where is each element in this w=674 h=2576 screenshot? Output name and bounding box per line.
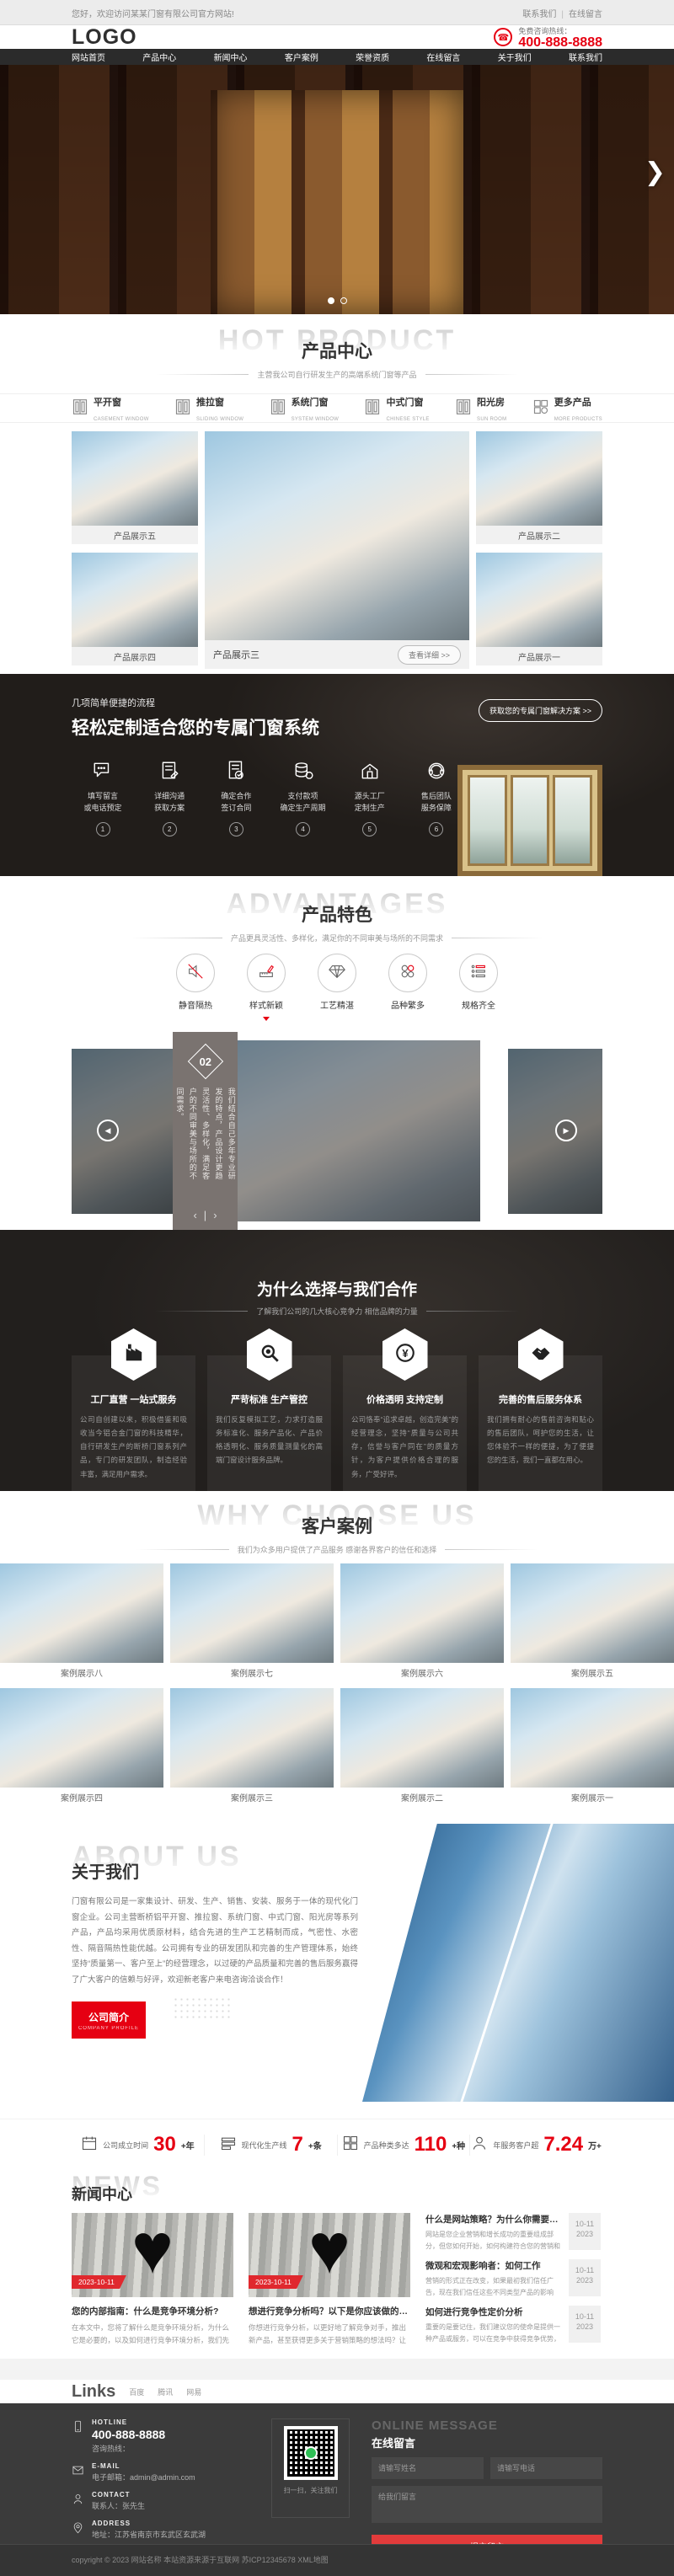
product-title: 产品展示五 [72, 526, 198, 544]
news-item-title: 如何进行竞争性定价分析 [425, 2306, 562, 2318]
case-image [170, 1563, 334, 1663]
product-image [476, 431, 602, 526]
tab-sublabel: SLIDING WINDOW [196, 417, 243, 422]
step-number: 4 [296, 822, 310, 836]
stat-label: 公司成立时间 [103, 2140, 148, 2151]
stat-customers: 年服务客户超 7.24 万+ [470, 2135, 602, 2156]
divider [155, 1311, 248, 1312]
copyright-text: copyright © 2023 网站名称 本站资源来源于互联网 苏ICP123… [72, 2556, 329, 2564]
news-list-item[interactable]: 什么是网站策略？为什么你需要它... 网站是您企业营销和增长成功的重要组成部分，… [425, 2213, 601, 2252]
stat-years: 公司成立时间 30 +年 [72, 2135, 205, 2156]
tab-label: 更多产品 [554, 398, 591, 408]
hotline-number: 400-888-8888 [518, 36, 602, 50]
tab-sliding-window[interactable]: 推拉窗SLIDING WINDOW [174, 394, 243, 425]
case-card[interactable]: 案例展示五 [511, 1563, 674, 1681]
name-input[interactable] [372, 2457, 484, 2479]
dot-pattern-decoration [173, 1996, 232, 2018]
stat-unit: +条 [308, 2139, 322, 2151]
divider: | [561, 10, 564, 19]
window-icon [72, 398, 88, 420]
feature-label: 工艺精湛 [318, 998, 356, 1011]
online-message-form: ONLINE MESSAGE 在线留言 提交留言 [372, 2418, 602, 2544]
why-subtitle: 了解我们公司的几大核心竞争力 相信品牌的力量 [256, 1306, 418, 1317]
news-featured-card[interactable]: 2023-10-11 想进行竞争分析吗？以下是你应该做的7个理... 你想进行竞… [249, 2213, 410, 2348]
active-feature-marker [263, 1017, 270, 1021]
stat-label: 现代化生产线 [242, 2140, 287, 2151]
process-step: 支付款项确定生产周期 4 [272, 760, 334, 836]
news-title: 新闻中心 [72, 2183, 602, 2205]
why-card-factory: 工厂直营 一站式服务 公司自创建以来，积极借鉴和吸收当今铝合金门窗的科技精华，自… [72, 1355, 195, 1491]
tab-sublabel: CHINESE STYLE [386, 417, 429, 422]
about-section: ABOUT US 关于我们 门窗有限公司是一家集设计、研发、生产、销售、安装、服… [0, 1824, 674, 2119]
stat-value: 30 [153, 2135, 176, 2155]
logo[interactable]: LOGO [72, 25, 137, 50]
feature-label: 规格齐全 [459, 998, 498, 1011]
coins-icon [292, 771, 314, 785]
friend-links-bar: Links 百度 腾讯 网易 [0, 2380, 674, 2403]
why-card-title: 价格透明 支持定制 [351, 1392, 458, 1406]
get-solution-button[interactable]: 获取您的专属门窗解决方案 >> [479, 699, 602, 722]
list-icon [469, 962, 488, 985]
why-card-title: 完善的售后服务体系 [487, 1392, 594, 1406]
nav-item-honor[interactable]: 荣誉资质 [356, 51, 389, 63]
tab-label: 阳光房 [477, 398, 505, 408]
factory-icon [123, 1342, 145, 1368]
featured-product-card[interactable]: 产品展示三 查看详细 >> [205, 431, 469, 669]
why-card-price: ¥ 价格透明 支持定制 公司恪奉“追求卓越，创造完美”的经营理念，坚持“质量与公… [343, 1355, 467, 1491]
banner-dots [0, 297, 674, 304]
topbar-link-contact[interactable]: 联系我们 [522, 10, 556, 19]
feature-label: 品种繁多 [388, 998, 427, 1011]
friend-link[interactable]: 网易 [186, 2386, 201, 2397]
news-list-item[interactable]: 如何进行竞争性定价分析 重要的是要记住，我们建议您的使命是提供一种产品或服务，可… [425, 2306, 601, 2344]
news-card-excerpt: 你想进行竞争分析，以更好地了解竞争对手，推出新产品，甚至获得更多关于营销策略的想… [249, 2322, 410, 2348]
news-image: 2023-10-11 [72, 2213, 233, 2297]
view-detail-button[interactable]: 查看详细 >> [398, 645, 461, 665]
news-image: 2023-10-11 [249, 2213, 410, 2297]
carousel-arrow-right[interactable]: ▶ [555, 1120, 577, 1141]
case-card[interactable]: 案例展示七 [170, 1563, 334, 1681]
why-card-standard: 严苛标准 生产管控 我们反复模拟工艺，力求打造服务标准化、服务产品化、产品价格透… [207, 1355, 331, 1491]
stat-unit: 万+ [588, 2139, 602, 2151]
case-card[interactable]: 案例展示八 [0, 1563, 163, 1681]
footer-contact-column: HOTLINE400-888-8888咨询热线： E-MAIL电子邮箱：admi… [72, 2418, 249, 2544]
product-card[interactable]: 产品展示一 [476, 553, 602, 665]
case-image [0, 1688, 163, 1788]
diamond-icon [328, 962, 346, 985]
qr-code [284, 2426, 338, 2480]
divider [425, 374, 518, 375]
news-card-excerpt: 在本文中，您将了解什么是竞争环境分析，为什么它是必要的，以及如何进行竞争环境分析… [72, 2322, 233, 2348]
design-icon [257, 962, 275, 985]
nav-item-home[interactable]: 网站首页 [72, 51, 105, 63]
process-side-image [457, 765, 602, 876]
cases-section: WHY CHOOSE US 客户案例 我们为众多用户提供了产品服务 感谢各界客户… [0, 1491, 674, 1824]
stat-products: 产品种类多达 110 +种 [338, 2135, 471, 2156]
hotline: ☎ 免费咨询热线： 400-888-8888 [494, 25, 602, 50]
carousel-prev-button[interactable]: ‹ [193, 1209, 196, 1221]
nav-item-cases[interactable]: 客户案例 [285, 51, 318, 63]
slide-number: 02 [199, 1056, 211, 1068]
tab-sublabel: MORE PRODUCTS [554, 417, 602, 422]
step-number: 5 [362, 822, 377, 836]
carousel-overlay-panel: 02 我们结合自己多年专业研发的特点，产品设计更趋灵活性、多样化，满足客户的不同… [173, 1032, 238, 1230]
tab-label: 中式门窗 [386, 398, 423, 408]
message-ghost-title: ONLINE MESSAGE [372, 2418, 602, 2433]
advantages-section: ADVANTAGES 产品特色 产品更具灵活性、多样化，满足你的不同审美与场所的… [0, 876, 674, 1032]
news-item-date: 10-112023 [569, 2306, 601, 2343]
tab-label: 推拉窗 [196, 398, 224, 408]
nav-item-news[interactable]: 新闻中心 [214, 51, 248, 63]
users-icon [471, 2135, 488, 2156]
carousel-next-button[interactable]: › [213, 1209, 217, 1221]
phone-input[interactable] [490, 2457, 602, 2479]
why-card-aftersale: 完善的售后服务体系 我们拥有耐心的售前咨询和贴心的售后团队，呵护您的生活，让您体… [479, 1355, 602, 1491]
copyright-bar: copyright © 2023 网站名称 本站资源来源于互联网 苏ICP123… [0, 2544, 674, 2576]
case-image [511, 1688, 674, 1788]
tab-sublabel: CASEMENT WINDOW [94, 417, 149, 422]
news-date-ribbon: 2023-10-11 [72, 2275, 126, 2289]
friend-link[interactable]: 腾讯 [158, 2386, 173, 2397]
process-steps: 填写留言或电话预定 1 详细沟通获取方案 2 确定合作签订合同 3 支付款项确定… [72, 760, 468, 836]
more-products-icon [532, 398, 549, 420]
case-title: 案例展示七 [170, 1663, 334, 1681]
price-icon: ¥ [394, 1342, 416, 1368]
factory-icon [359, 771, 381, 785]
case-image [170, 1688, 334, 1788]
news-card-title: 您的内部指南：什么是竞争环境分析? [72, 2305, 233, 2317]
stat-label: 年服务客户超 [493, 2140, 538, 2151]
footer-qrcode-box: 扫一扫，关注我们 [271, 2418, 350, 2518]
about-building-image [362, 1824, 674, 2102]
why-card-title: 工厂直营 一站式服务 [80, 1392, 187, 1406]
tab-sun-room[interactable]: 阳光房SUN ROOM [455, 394, 506, 425]
nav-item-contact[interactable]: 联系我们 [569, 51, 602, 63]
advantages-title: 产品特色 [0, 901, 674, 927]
product-title: 产品展示四 [72, 647, 198, 665]
svg-text:¥: ¥ [402, 1346, 409, 1359]
news-item-date: 10-112023 [569, 2259, 601, 2296]
main-nav: 网站首页 产品中心 新闻中心 客户案例 荣誉资质 在线留言 关于我们 联系我们 [0, 49, 674, 65]
news-item-title: 什么是网站策略？为什么你需要它... [425, 2213, 562, 2226]
why-card-title: 严苛标准 生产管控 [216, 1392, 323, 1406]
why-title: 为什么选择与我们合作 [0, 1277, 674, 1300]
mute-icon [186, 962, 205, 985]
products-section-head: HOT PRODUCT 产品中心 主营我公司自行研发生产的高端系统门窗等产品 [0, 314, 674, 393]
case-image [340, 1563, 504, 1663]
window-icon [174, 398, 191, 420]
slide-caption: 我们结合自己多年专业研发的特点，产品设计更趋灵活性、多样化，满足客户的不同审美与… [173, 1088, 237, 1187]
why-card-desc: 公司恪奉“追求卓越，创造完美”的经营理念，坚持“质量与公司共存，信誉与客户同在”… [351, 1413, 458, 1481]
links-title: Links [72, 2382, 115, 2402]
banner-image [211, 90, 463, 314]
divider: | [204, 1209, 206, 1221]
case-card[interactable]: 案例展示六 [340, 1563, 504, 1681]
page: 您好，欢迎访问某某门窗有限公司官方网站! 联系我们|在线留言 LOGO ☎ 免费… [0, 0, 674, 2576]
slide-number-diamond: 02 [187, 1044, 222, 1079]
case-card[interactable]: 案例展示一 [511, 1688, 674, 1806]
product-image [476, 553, 602, 647]
cases-subtitle: 我们为众多用户提供了产品服务 感谢各界客户的信任和选择 [238, 1544, 437, 1555]
divider [136, 1549, 229, 1550]
variety-icon [399, 962, 417, 985]
tab-sublabel: SUN ROOM [477, 417, 506, 422]
why-section: 为什么选择与我们合作 了解我们公司的几大核心竞争力 相信品牌的力量 工厂直营 一… [0, 1230, 674, 1491]
case-title: 案例展示二 [340, 1788, 504, 1806]
product-title: 产品展示一 [476, 647, 602, 665]
welcome-text: 您好，欢迎访问某某门窗有限公司官方网站! [72, 7, 234, 19]
feature-label: 样式新颖 [247, 998, 286, 1011]
phone-icon [72, 2418, 84, 2437]
tab-label: 系统门窗 [292, 398, 329, 408]
window-icon [364, 398, 381, 420]
product-card[interactable]: 产品展示四 [72, 553, 198, 665]
service-icon [425, 771, 447, 785]
stat-unit: +种 [452, 2139, 465, 2151]
chat-icon [92, 771, 114, 785]
news-item-title: 微观和宏观影响者：如何工作 [425, 2259, 562, 2272]
news-item-excerpt: 重要的是要记住，我们建议您的使命是提供一种产品或服务，可以在竞争中获得竞争优势，… [425, 2322, 562, 2344]
tab-chinese-style[interactable]: 中式门窗CHINESE STYLE [364, 394, 429, 425]
footer-address: ADDRESS地址：江苏省南京市玄武区玄武湖 [72, 2520, 249, 2540]
process-step: 确定合作签订合同 3 [205, 760, 267, 836]
feature-specs[interactable]: 规格齐全 [459, 954, 498, 1011]
tab-label: 平开窗 [94, 398, 121, 408]
stat-value: 7.24 [543, 2135, 583, 2155]
footer-hotline: HOTLINE400-888-8888咨询热线： [72, 2418, 249, 2454]
banner-dot-1[interactable] [328, 297, 334, 304]
section-divider-band [0, 2359, 674, 2380]
hero-banner: ❯ [0, 65, 674, 314]
divider [445, 1549, 538, 1550]
news-card-title: 想进行竞争分析吗？以下是你应该做的7个理... [249, 2305, 410, 2317]
tab-more-products[interactable]: 更多产品MORE PRODUCTS [532, 394, 602, 425]
header: LOGO ☎ 免费咨询热线： 400-888-8888 [0, 25, 674, 49]
stats-strip: 公司成立时间 30 +年 现代化生产线 7 +条 产品种类多达 110 +种 年… [0, 2119, 674, 2169]
stat-value: 110 [415, 2135, 447, 2155]
products-title: 产品中心 [0, 338, 674, 363]
nav-item-about[interactable]: 关于我们 [498, 51, 532, 63]
news-item-excerpt: 网站是您企业营销和增长成功的重要组成部分，但您如何开始，如何构建符合您的营销和业… [425, 2229, 562, 2252]
calendar-icon [81, 2135, 98, 2156]
advantages-subtitle: 产品更具灵活性、多样化，满足你的不同审美与场所的不同需求 [231, 933, 443, 943]
map-pin-icon [72, 2520, 84, 2538]
wechat-logo-dot [304, 2446, 318, 2460]
person-icon [72, 2491, 84, 2509]
product-title: 产品展示三 [213, 648, 259, 661]
banner-dot-2[interactable] [340, 297, 347, 304]
case-title: 案例展示八 [0, 1663, 163, 1681]
case-title: 案例展示六 [340, 1663, 504, 1681]
process-section: 几项简单便捷的流程 轻松定制适合您的专属门窗系统 获取您的专属门窗解决方案 >>… [0, 674, 674, 876]
feature-variety[interactable]: 品种繁多 [388, 954, 427, 1011]
products-subtitle: 主营我公司自行研发生产的高端系统门窗等产品 [257, 369, 416, 380]
step-number: 1 [96, 822, 110, 836]
step-number: 6 [429, 822, 443, 836]
stat-label: 产品种类多达 [364, 2140, 409, 2151]
case-title: 案例展示五 [511, 1663, 674, 1681]
case-title: 案例展示三 [170, 1788, 334, 1806]
case-card[interactable]: 案例展示二 [340, 1688, 504, 1806]
why-card-desc: 公司自创建以来，积极借鉴和吸收当今铝合金门窗的科技精华，自行研发生产的断桥门窗系… [80, 1413, 187, 1481]
step-number: 2 [163, 822, 177, 836]
stat-lines: 现代化生产线 7 +条 [205, 2135, 338, 2156]
carousel-arrow-left[interactable]: ◀ [97, 1120, 119, 1141]
grid-icon [342, 2135, 359, 2156]
feature-list: 静音隔热 样式新颖 工艺精湛 品种繁多 规格齐全 [0, 954, 674, 1011]
divider [452, 938, 544, 938]
divider [130, 938, 222, 938]
handshake-icon [530, 1342, 552, 1368]
case-card[interactable]: 案例展示三 [170, 1688, 334, 1806]
magnifier-icon [259, 1342, 281, 1368]
news-item-date: 10-112023 [569, 2213, 601, 2250]
divider [426, 1311, 519, 1312]
contract-icon [225, 771, 247, 785]
message-textarea[interactable] [372, 2486, 602, 2523]
qr-caption: 扫一扫，关注我们 [279, 2486, 342, 2495]
stat-unit: +年 [181, 2139, 195, 2151]
tab-system-window[interactable]: 系统门窗SYSTEM WINDOW [270, 394, 340, 425]
news-list: 什么是网站策略？为什么你需要它... 网站是您企业营销和增长成功的重要组成部分，… [425, 2213, 601, 2348]
product-card[interactable]: 产品展示五 [72, 431, 198, 544]
news-date-ribbon: 2023-10-11 [249, 2275, 303, 2289]
why-card-desc: 我们拥有耐心的售前咨询和贴心的售后团队，呵护您的生活，让您体验不一样的便捷，为了… [487, 1413, 594, 1467]
news-item-excerpt: 营销的形式正在改变，如果最初我们信任广告，现在我们信任这些不同类型产品的影响者，… [425, 2275, 562, 2298]
divider [156, 374, 249, 375]
feature-style[interactable]: 样式新颖 [247, 954, 286, 1011]
topbar-link-message[interactable]: 在线留言 [569, 10, 602, 19]
company-profile-button[interactable]: 公司简介 COMPANY PROFILE [72, 2001, 146, 2039]
carousel-main-slide [202, 1040, 480, 1221]
window-icon [270, 398, 286, 420]
phone-icon: ☎ [494, 28, 512, 46]
mail-icon [72, 2462, 84, 2481]
stat-value: 7 [292, 2135, 303, 2155]
tab-casement-window[interactable]: 平开窗CASEMENT WINDOW [72, 394, 149, 425]
friend-link[interactable]: 百度 [129, 2386, 144, 2397]
product-image [72, 431, 198, 526]
production-line-icon [220, 2135, 237, 2156]
case-title: 案例展示四 [0, 1788, 163, 1806]
product-title: 产品展示二 [476, 526, 602, 544]
product-image [205, 431, 469, 640]
tab-sublabel: SYSTEM WINDOW [292, 417, 340, 422]
nav-item-message[interactable]: 在线留言 [426, 51, 460, 63]
news-featured-card[interactable]: 2023-10-11 您的内部指南：什么是竞争环境分析? 在本文中，您将了解什么… [72, 2213, 233, 2348]
case-image [340, 1688, 504, 1788]
process-step: 填写留言或电话预定 1 [72, 760, 134, 836]
carousel-prev-slide [72, 1049, 174, 1214]
message-title: 在线留言 [372, 2434, 602, 2450]
why-card-desc: 我们反复模拟工艺，力求打造服务标准化、服务产品化、产品价格透明化、服务质量测量化… [216, 1413, 323, 1467]
feature-soundproof[interactable]: 静音隔热 [176, 954, 215, 1011]
step-number: 3 [229, 822, 243, 836]
process-step: 源头工厂定制生产 5 [339, 760, 401, 836]
showcase-carousel: 02 我们结合自己多年专业研发的特点，产品设计更趋灵活性、多样化，满足客户的不同… [0, 1032, 674, 1230]
footer-contact-person: CONTACT联系人：张先生 [72, 2491, 249, 2511]
process-step: 详细沟通获取方案 2 [138, 760, 201, 836]
footer-email: E-MAIL电子邮箱：admin@admin.com [72, 2462, 249, 2482]
banner-next-arrow-icon[interactable]: ❯ [645, 158, 666, 187]
case-title: 案例展示一 [511, 1788, 674, 1806]
cases-title: 客户案例 [0, 1513, 674, 1538]
submit-message-button[interactable]: 提交留言 [372, 2535, 602, 2544]
footer: HOTLINE400-888-8888咨询热线： E-MAIL电子邮箱：admi… [0, 2403, 674, 2544]
button-sublabel: COMPANY PROFILE [72, 2026, 146, 2031]
button-label: 公司简介 [72, 2010, 146, 2024]
window-icon [455, 398, 472, 420]
document-icon [158, 771, 180, 785]
news-section: NEWS 新闻中心 2023-10-11 您的内部指南：什么是竞争环境分析? 在… [0, 2169, 674, 2359]
product-image [72, 553, 198, 647]
product-grid: 产品展示五 产品展示四 产品展示三 查看详细 >> 产品展示二 [0, 423, 674, 674]
nav-item-products[interactable]: 产品中心 [142, 51, 176, 63]
case-image [511, 1563, 674, 1663]
case-grid: 案例展示八 案例展示七 案例展示六 案例展示五 案例展示四 案例展示三 案例展示… [0, 1563, 674, 1806]
feature-label: 静音隔热 [176, 998, 215, 1011]
about-paragraph: 门窗有限公司是一家集设计、研发、生产、销售、安装、服务于一体的现代化门窗企业。公… [72, 1895, 358, 1988]
product-card[interactable]: 产品展示二 [476, 431, 602, 544]
feature-craft[interactable]: 工艺精湛 [318, 954, 356, 1011]
news-list-item[interactable]: 微观和宏观影响者：如何工作 营销的形式正在改变，如果最初我们信任广告，现在我们信… [425, 2259, 601, 2298]
product-tabs: 平开窗CASEMENT WINDOW 推拉窗SLIDING WINDOW 系统门… [0, 393, 674, 423]
case-card[interactable]: 案例展示四 [0, 1688, 163, 1806]
case-image [0, 1563, 163, 1663]
topbar: 您好，欢迎访问某某门窗有限公司官方网站! 联系我们|在线留言 [0, 0, 674, 25]
hotline-label: 免费咨询热线： [518, 25, 602, 36]
